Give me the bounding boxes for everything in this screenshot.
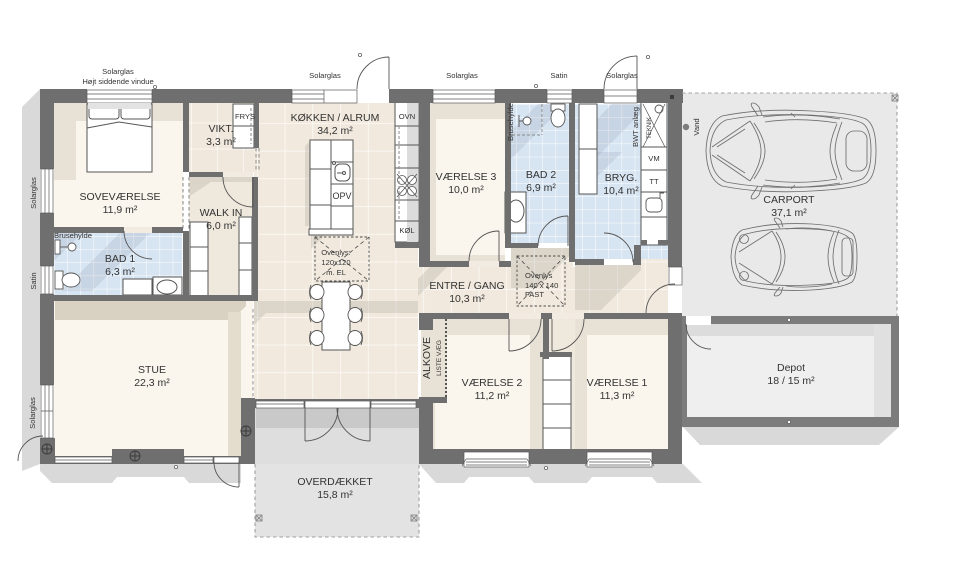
svg-text:Vand: Vand [692, 118, 701, 135]
svg-text:BWT anlæg: BWT anlæg [631, 107, 640, 147]
svg-text:Depot: Depot [777, 362, 805, 374]
svg-text:140 x 140: 140 x 140 [525, 281, 558, 290]
svg-text:VÆRELSE 1: VÆRELSE 1 [587, 377, 648, 389]
svg-text:18 / 15 m²: 18 / 15 m² [767, 375, 815, 387]
svg-text:OVN: OVN [399, 112, 415, 121]
svg-text:TEKNIK: TEKNIK [647, 117, 653, 139]
svg-text:6,9 m²: 6,9 m² [526, 182, 556, 194]
svg-text:22,3 m²: 22,3 m² [134, 377, 170, 389]
svg-text:FAST: FAST [525, 290, 544, 299]
svg-text:10,4 m²: 10,4 m² [603, 185, 639, 197]
svg-text:6,3 m²: 6,3 m² [105, 266, 135, 278]
svg-text:VM: VM [648, 154, 659, 163]
svg-text:m. EL: m. EL [326, 268, 346, 277]
svg-text:ALKOVE: ALKOVE [421, 337, 433, 379]
svg-text:Solarglas: Solarglas [102, 67, 134, 76]
svg-text:Solarglas: Solarglas [28, 397, 37, 429]
svg-text:10,0 m²: 10,0 m² [448, 184, 484, 196]
svg-text:VIKT.: VIKT. [208, 123, 233, 135]
svg-text:Højt siddende vindue: Højt siddende vindue [82, 77, 153, 86]
svg-text:LISTE VÆG: LISTE VÆG [436, 340, 443, 376]
svg-text:Ovenlys: Ovenlys [525, 271, 553, 280]
svg-text:11,2 m²: 11,2 m² [475, 390, 510, 402]
svg-text:BAD 2: BAD 2 [526, 169, 557, 181]
svg-text:OVERDÆKKET: OVERDÆKKET [297, 476, 373, 488]
svg-text:FRYS: FRYS [235, 112, 255, 121]
svg-text:TT: TT [649, 177, 659, 186]
svg-text:BRYG.: BRYG. [605, 172, 637, 184]
svg-text:VÆRELSE 3: VÆRELSE 3 [436, 171, 497, 183]
svg-text:Ovenlys:: Ovenlys: [321, 248, 351, 257]
svg-text:SOVEVÆRELSE: SOVEVÆRELSE [79, 191, 160, 203]
svg-text:Solarglas: Solarglas [29, 177, 38, 209]
svg-text:Solarglas: Solarglas [606, 71, 638, 80]
svg-text:WALK IN: WALK IN [200, 207, 243, 219]
svg-text:Solarglas: Solarglas [446, 71, 478, 80]
svg-text:OPV: OPV [332, 191, 351, 201]
svg-text:Brusehylde: Brusehylde [54, 231, 92, 240]
svg-text:VÆRELSE 2: VÆRELSE 2 [462, 377, 523, 389]
svg-text:Satin: Satin [550, 71, 567, 80]
svg-text:Brusehylde: Brusehylde [506, 103, 515, 141]
svg-text:KØKKEN / ALRUM: KØKKEN / ALRUM [291, 112, 380, 124]
svg-text:3,3 m²: 3,3 m² [206, 136, 236, 148]
svg-text:KØL: KØL [399, 226, 414, 235]
svg-text:15,8 m²: 15,8 m² [317, 489, 353, 501]
svg-text:STUE: STUE [138, 364, 166, 376]
svg-text:6,0 m²: 6,0 m² [206, 220, 236, 232]
svg-text:11,3 m²: 11,3 m² [600, 390, 635, 402]
svg-text:Satin: Satin [29, 272, 38, 289]
svg-text:120x120: 120x120 [321, 258, 350, 267]
svg-text:ENTRE / GANG: ENTRE / GANG [429, 280, 504, 292]
svg-text:Solarglas: Solarglas [309, 71, 341, 80]
svg-text:CARPORT: CARPORT [763, 194, 815, 206]
svg-text:BAD 1: BAD 1 [105, 253, 136, 265]
svg-text:11,9 m²: 11,9 m² [103, 204, 138, 216]
svg-text:37,1 m²: 37,1 m² [771, 207, 807, 219]
svg-text:10,3 m²: 10,3 m² [449, 293, 485, 305]
svg-text:34,2 m²: 34,2 m² [317, 125, 353, 137]
